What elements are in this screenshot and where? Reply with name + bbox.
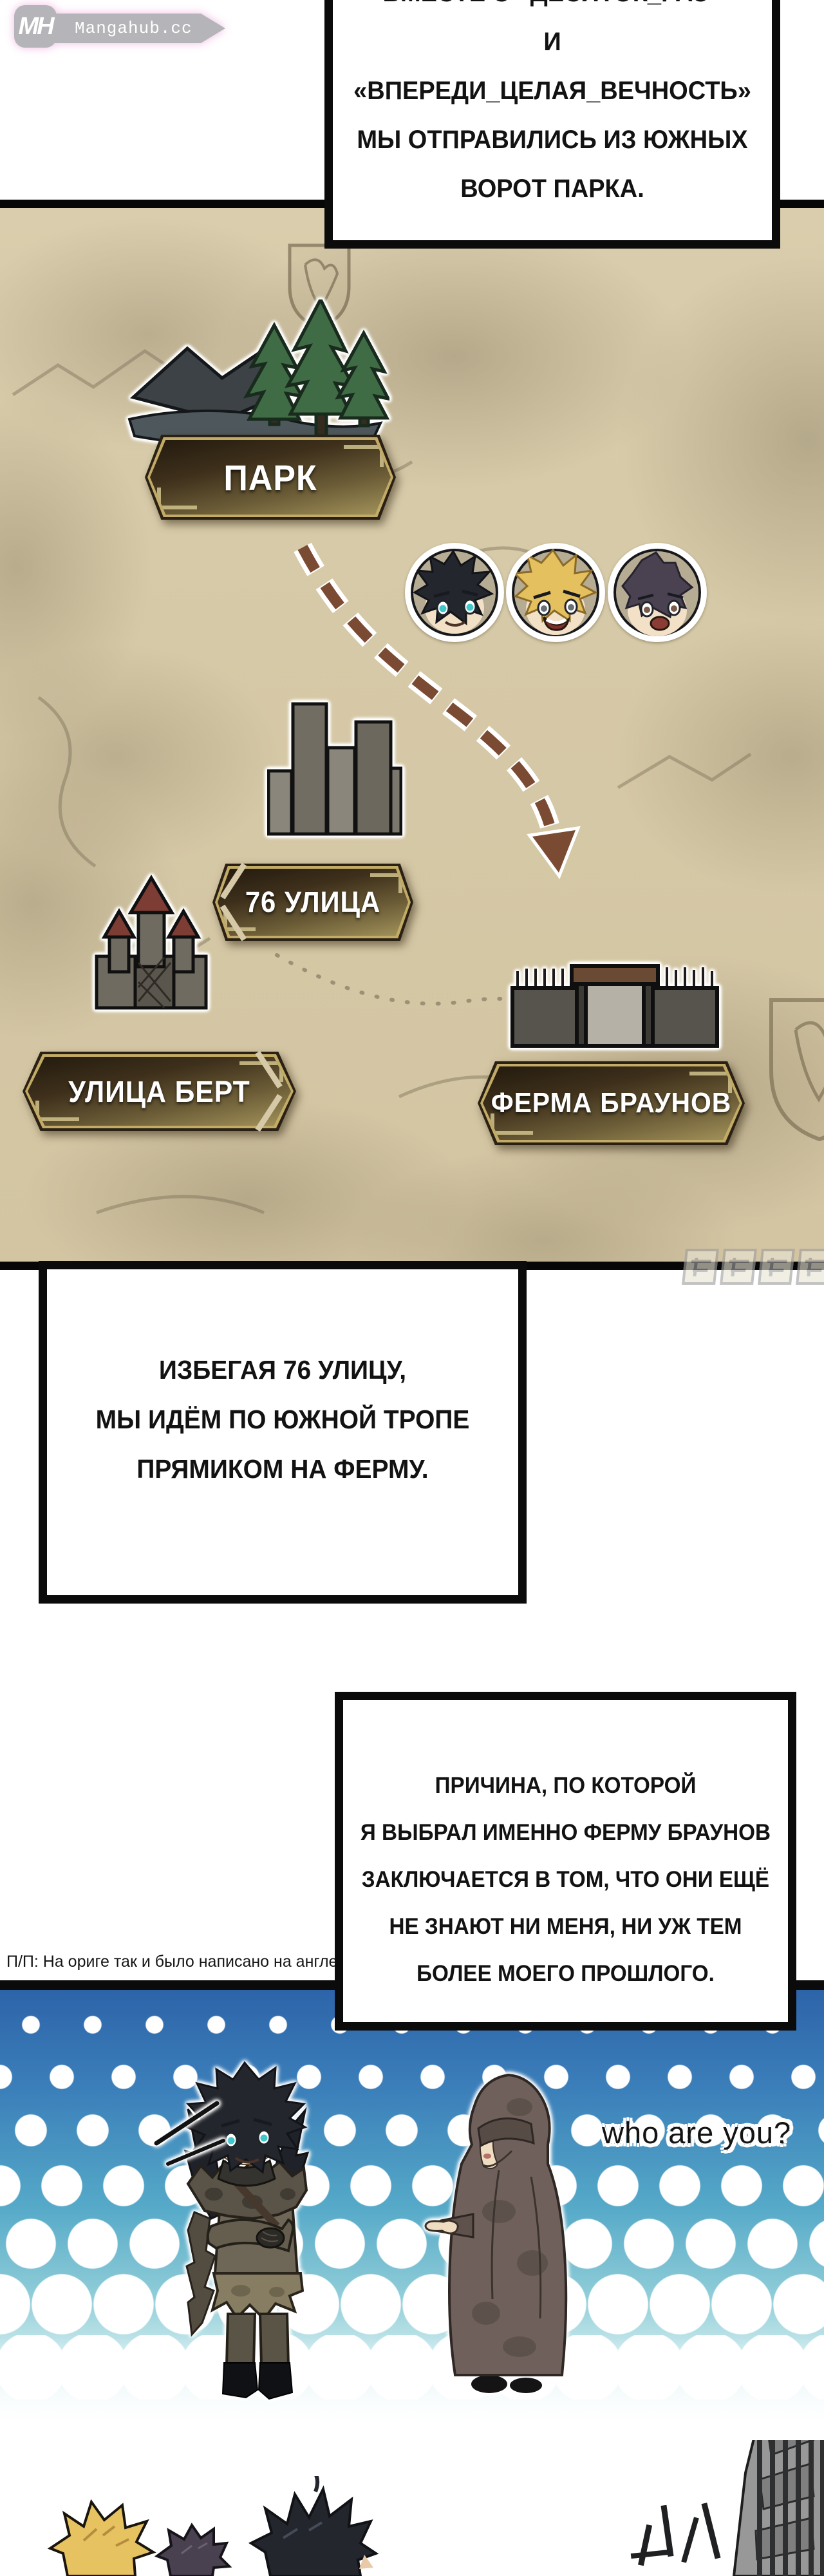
speed-lines-icon: [145, 2093, 241, 2170]
map-label-browns-farm: ФЕРМА БРАУНОВ: [478, 1061, 745, 1145]
city-buildings-icon: [267, 699, 402, 837]
narration-line: НЕ ЗНАЮТ НИ МЕНЯ, НИ УЖ ТЕМ: [354, 1903, 776, 1950]
avatar-purple-haired-boy: [608, 543, 707, 642]
avatar-blonde-boy: [506, 543, 605, 642]
blonde-head-icon: [50, 2502, 153, 2576]
site-name: Mangahub.cc: [50, 19, 192, 38]
narration-line: ЗАКЛЮЧАЕТСЯ В ТОМ, ЧТО ОНИ ЕЩЁ: [354, 1856, 776, 1903]
map-watermark-icon: [682, 1249, 824, 1285]
black-head-icon: [251, 2476, 376, 2576]
map-label-bert-street: УЛИЦА БЕРТ: [23, 1052, 296, 1131]
translator-note: П/П: На ориге так и было написано на анг…: [6, 1953, 337, 1971]
narration-line: ПРЯМИКОМ НА ФЕРМУ.: [59, 1444, 506, 1494]
narration-line: ВОРОТ ПАРКА.: [344, 164, 761, 213]
purple-head-icon: [157, 2525, 229, 2576]
narration-line: Я ВЫБРАЛ ИМЕННО ФЕРМУ БРАУНОВ: [354, 1809, 776, 1856]
narration-line: МЫ ИДЁМ ПО ЮЖНОЙ ТРОПЕ: [59, 1395, 506, 1444]
narration-line: ПРИЧИНА, ПО КОТОРОЙ: [354, 1762, 776, 1809]
castle-icon: [90, 873, 212, 1018]
park-trees-mountain-icon: [126, 299, 389, 441]
map-label-park: ПАРК: [145, 435, 396, 520]
site-logo-icon: MH: [14, 5, 57, 48]
site-ribbon: Mangahub.cc: [50, 14, 225, 43]
narration-line: ВМЕСТЕ С «ДЕСЯТОК_РАЗ»: [344, 0, 761, 17]
avatar-black-haired-boy: [405, 543, 504, 642]
map-label-street-76: 76 УЛИЦА: [212, 864, 413, 941]
narration-line: ИЗБЕГАЯ 76 УЛИЦУ,: [59, 1345, 506, 1395]
chibi-hooded-stranger: [422, 2067, 592, 2402]
bottom-panel-heads: [39, 2476, 399, 2576]
narration-box-top: ВМЕСТЕ С «ДЕСЯТОК_РАЗ» И «ВПЕРЕДИ_ЦЕЛАЯ_…: [324, 0, 780, 249]
narration-box-route: ИЗБЕГАЯ 76 УЛИЦУ, МЫ ИДЁМ ПО ЮЖНОЙ ТРОПЕ…: [39, 1261, 527, 1604]
map-panel: ПАРК: [0, 200, 824, 1270]
dialogue-who-are-you: who are you?: [602, 2115, 791, 2150]
site-watermark: Mangahub.cc MH: [14, 5, 227, 50]
farm-gate-icon: [509, 953, 721, 1051]
narration-line: МЫ ОТПРАВИЛИСЬ ИЗ ЮЖНЫХ: [344, 115, 761, 164]
narration-box-reason: ПРИЧИНА, ПО КОТОРОЙ Я ВЫБРАЛ ИМЕННО ФЕРМ…: [335, 1692, 796, 2031]
narration-line: БОЛЕЕ МОЕГО ПРОШЛОГО.: [354, 1950, 776, 1997]
narration-line: И «ВПЕРЕДИ_ЦЕЛАЯ_ВЕЧНОСТЬ»: [344, 17, 761, 115]
polka-dot-panel: [0, 1980, 824, 2440]
